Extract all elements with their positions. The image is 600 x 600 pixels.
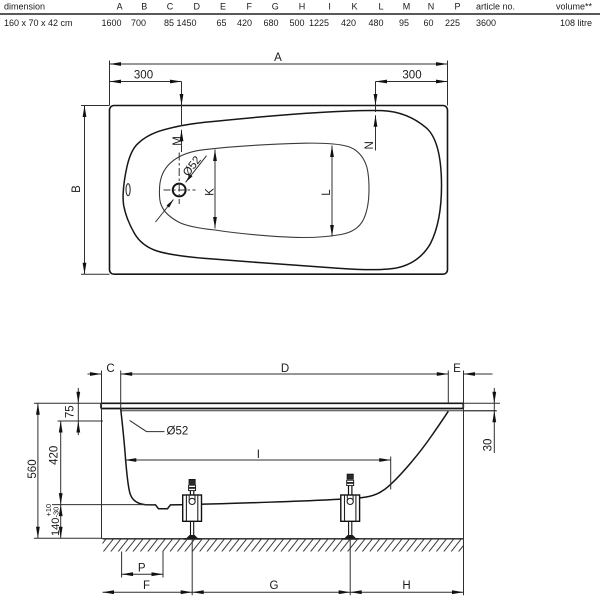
svg-text:30: 30 [482,439,494,452]
svg-text:C: C [106,363,114,375]
svg-text:140: 140 [50,518,62,536]
svg-text:420: 420 [49,446,61,465]
svg-text:I: I [257,449,260,461]
svg-text:85: 85 [164,18,174,28]
svg-text:680: 680 [263,18,278,28]
svg-text:500: 500 [289,18,304,28]
svg-text:C: C [167,1,174,11]
svg-text:G: G [272,1,279,11]
svg-text:65: 65 [216,18,226,28]
svg-text:H: H [402,580,410,592]
svg-text:480: 480 [368,18,383,28]
svg-text:dimension: dimension [4,1,45,11]
svg-text:560: 560 [27,459,39,478]
svg-text:P: P [138,563,146,575]
svg-text:F: F [246,1,252,11]
svg-text:K: K [204,188,216,196]
svg-text:D: D [193,1,200,11]
svg-text:K: K [351,1,357,11]
svg-text:300: 300 [402,70,421,82]
svg-text:1225: 1225 [309,18,329,28]
svg-text:article no.: article no. [476,1,515,11]
svg-text:A: A [274,52,282,64]
svg-text:108 litre: 108 litre [560,18,592,28]
svg-text:E: E [453,363,461,375]
svg-text:volume**: volume** [556,1,593,11]
svg-text:I: I [328,1,331,11]
svg-text:L: L [378,1,383,11]
svg-text:95: 95 [399,18,409,28]
svg-text:M: M [403,1,411,11]
svg-text:N: N [428,1,435,11]
svg-text:B: B [71,185,83,193]
svg-text:420: 420 [237,18,252,28]
svg-text:L: L [321,189,333,196]
svg-text:N: N [364,141,376,149]
svg-text:Ø52: Ø52 [167,426,189,438]
svg-text:P: P [454,1,460,11]
svg-text:160 x 70 x 42 cm: 160 x 70 x 42 cm [4,18,73,28]
svg-text:-30: -30 [51,507,60,518]
svg-text:M: M [172,136,184,146]
svg-text:420: 420 [341,18,356,28]
svg-text:B: B [141,1,147,11]
svg-text:G: G [270,580,279,592]
svg-text:300: 300 [134,70,153,82]
svg-text:75: 75 [64,405,76,418]
svg-text:1450: 1450 [176,18,196,28]
svg-text:A: A [117,1,123,11]
svg-text:H: H [299,1,306,11]
svg-text:60: 60 [423,18,433,28]
svg-text:225: 225 [445,18,460,28]
svg-text:1600: 1600 [101,18,121,28]
svg-text:E: E [220,1,226,11]
svg-text:F: F [143,580,150,592]
svg-text:D: D [281,363,289,375]
svg-text:3600: 3600 [476,18,496,28]
svg-text:700: 700 [131,18,146,28]
